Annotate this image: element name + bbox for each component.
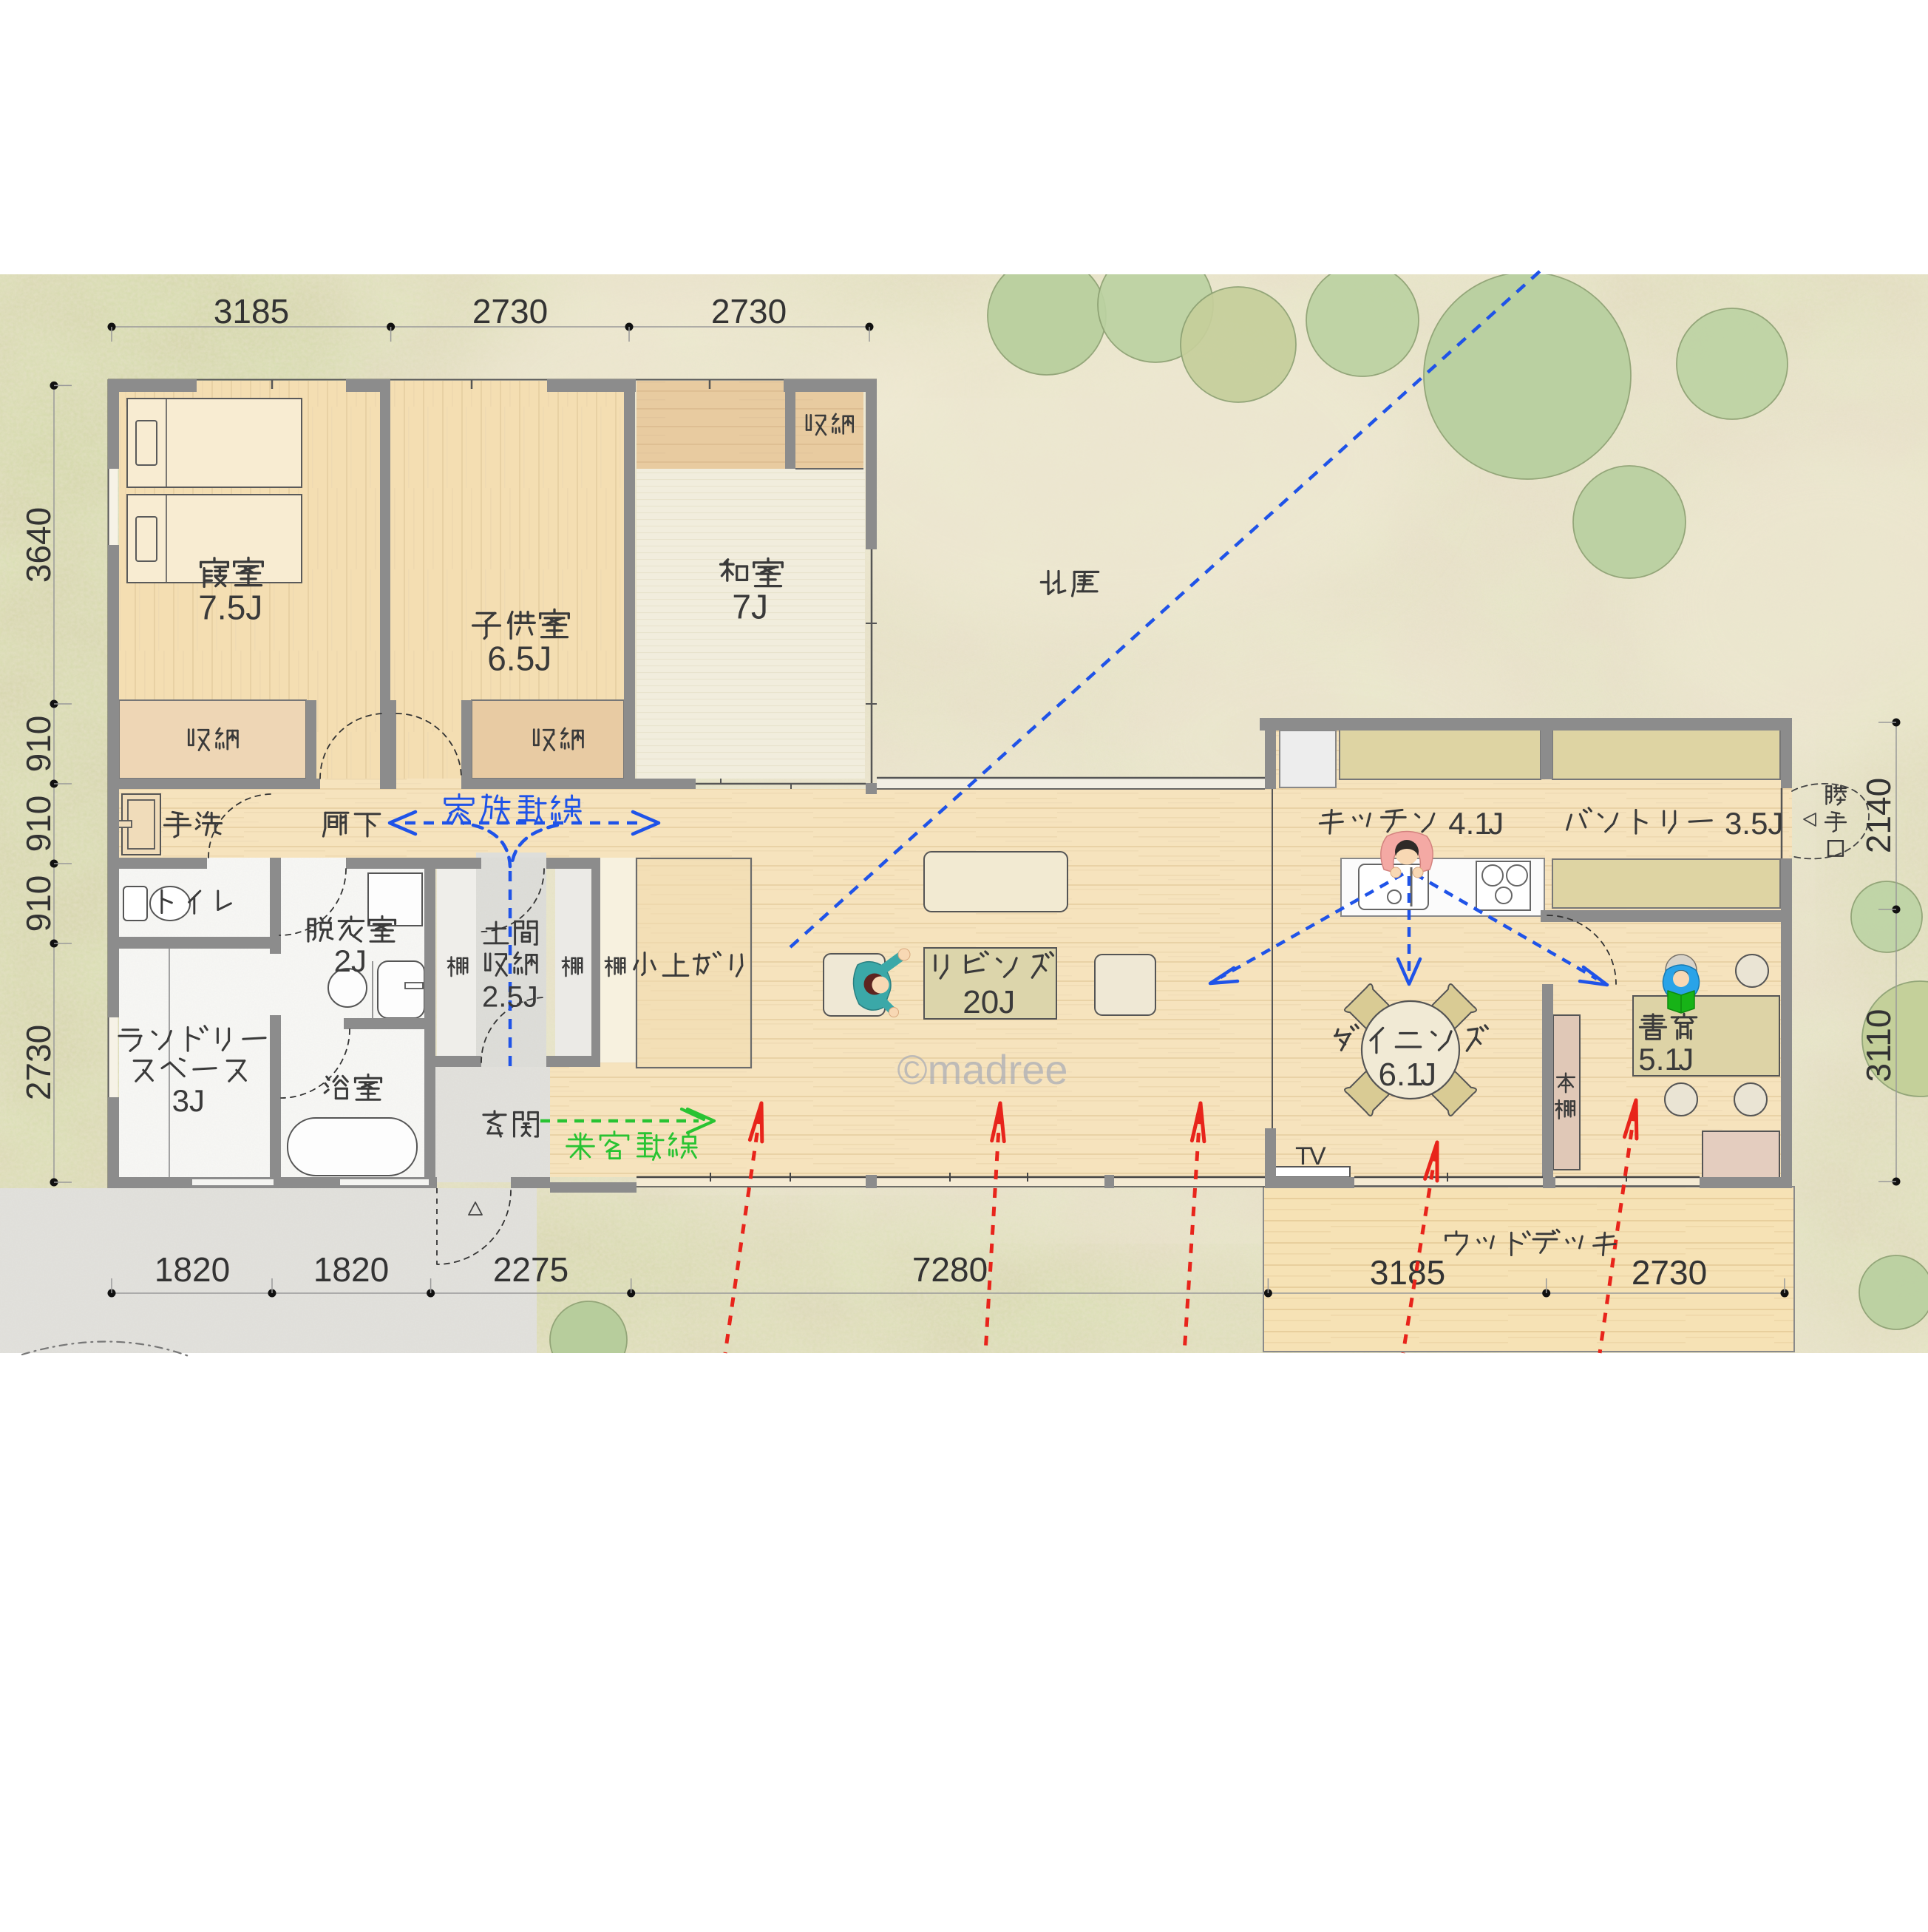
svg-text:J: J (523, 980, 538, 1013)
svg-text:4: 4 (1448, 806, 1465, 841)
svg-text:.: . (1466, 806, 1475, 841)
svg-text:J: J (189, 1083, 205, 1118)
svg-text:7: 7 (198, 589, 217, 627)
svg-text:V: V (1309, 1142, 1326, 1170)
svg-text:2: 2 (334, 943, 351, 978)
svg-text:3640: 3640 (19, 507, 58, 583)
svg-text:.: . (1656, 1042, 1665, 1077)
svg-text:3: 3 (172, 1083, 189, 1118)
svg-text:J: J (1678, 1042, 1694, 1077)
svg-text:5: 5 (507, 980, 523, 1013)
svg-text:6: 6 (1379, 1057, 1396, 1093)
svg-text:2: 2 (482, 980, 498, 1013)
svg-text:J: J (1488, 806, 1504, 841)
svg-text:J: J (1420, 1057, 1436, 1093)
svg-text:3: 3 (1725, 806, 1742, 841)
svg-text:0: 0 (981, 984, 999, 1020)
svg-text:J: J (999, 984, 1015, 1020)
svg-text:2730: 2730 (472, 292, 548, 331)
svg-text:.: . (506, 640, 516, 678)
svg-text:.: . (498, 980, 506, 1013)
svg-text:5: 5 (1751, 806, 1768, 841)
svg-text:©madree: ©madree (897, 1046, 1067, 1093)
svg-text:1820: 1820 (313, 1250, 389, 1289)
svg-text:7: 7 (732, 588, 751, 626)
svg-text:.: . (1742, 806, 1751, 841)
svg-text:1820: 1820 (155, 1250, 230, 1289)
svg-text:J: J (351, 943, 367, 978)
svg-text:7280: 7280 (912, 1250, 988, 1289)
svg-text:5: 5 (227, 589, 246, 627)
svg-text:2140: 2140 (1859, 778, 1898, 853)
svg-text:J: J (245, 589, 262, 627)
svg-text:2730: 2730 (1632, 1253, 1707, 1292)
svg-text:.: . (1396, 1057, 1405, 1093)
svg-text:2730: 2730 (711, 292, 787, 331)
svg-text:2730: 2730 (19, 1025, 58, 1100)
svg-text:T: T (1295, 1142, 1311, 1170)
svg-text:910: 910 (19, 716, 58, 773)
svg-text:3185: 3185 (1370, 1253, 1445, 1292)
svg-text:5: 5 (1638, 1042, 1655, 1077)
svg-text:2: 2 (963, 984, 980, 1020)
svg-text:J: J (1768, 806, 1783, 841)
svg-text:5: 5 (516, 640, 535, 678)
svg-text:.: . (217, 589, 227, 627)
svg-text:6: 6 (487, 640, 506, 678)
svg-text:3185: 3185 (214, 292, 289, 331)
svg-text:910: 910 (19, 875, 58, 932)
svg-text:910: 910 (19, 796, 58, 853)
svg-text:J: J (534, 640, 551, 678)
svg-text:J: J (751, 588, 768, 626)
svg-text:3110: 3110 (1859, 1009, 1898, 1082)
svg-text:2275: 2275 (493, 1250, 568, 1289)
